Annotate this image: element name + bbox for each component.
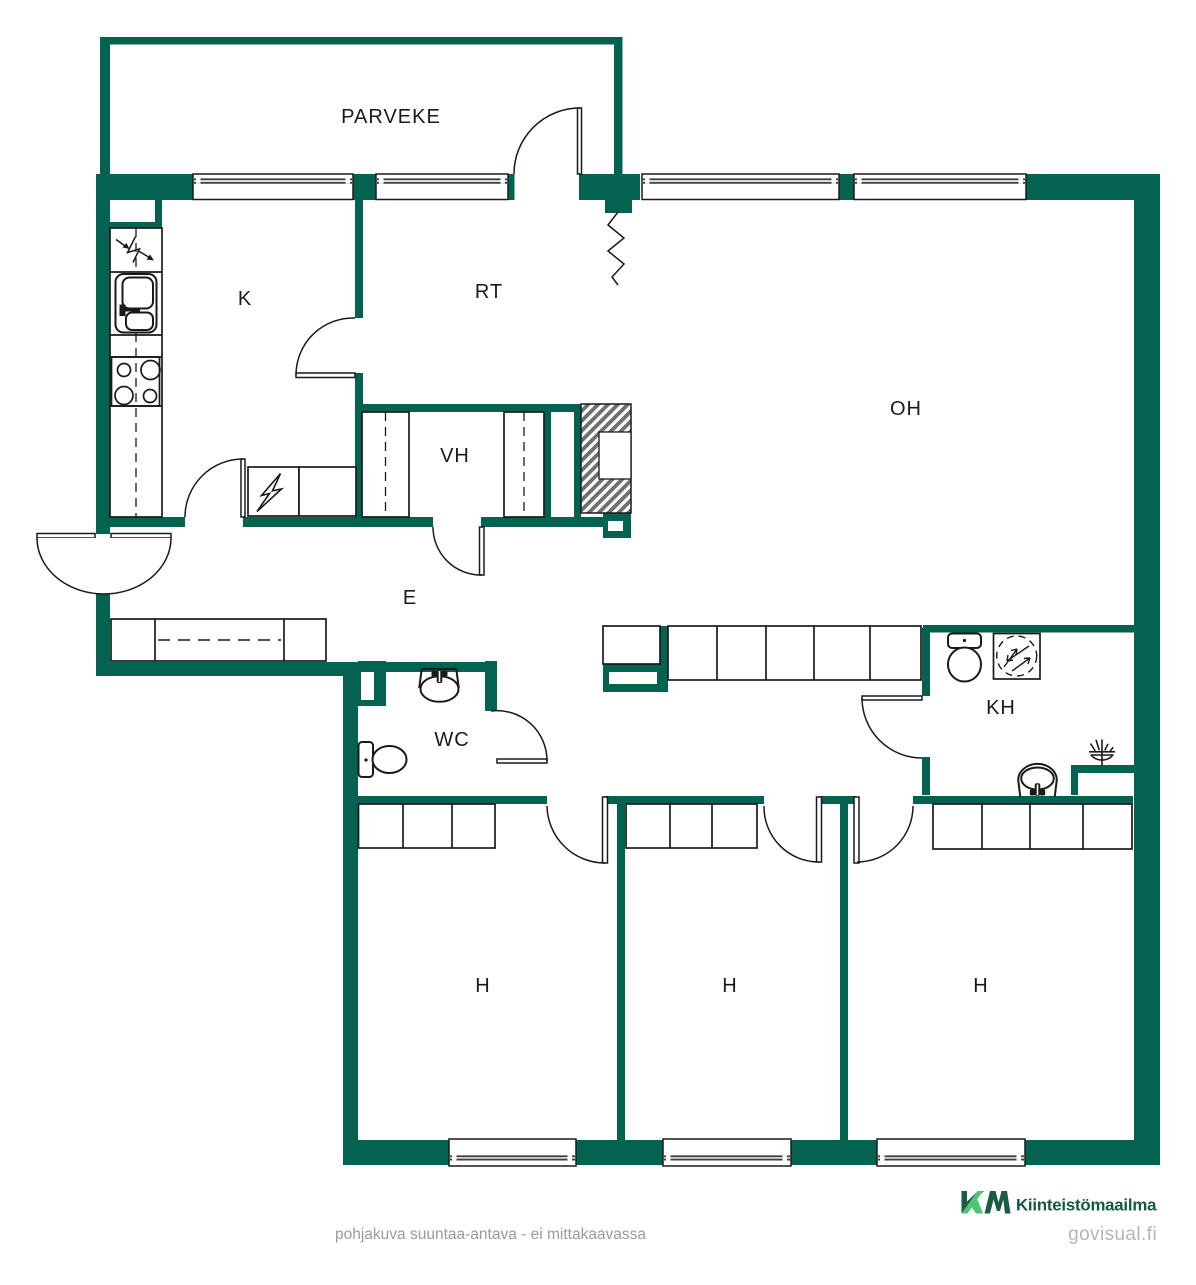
svg-text:govisual.fi: govisual.fi <box>1068 1224 1157 1245</box>
svg-text:KH: KH <box>986 697 1016 719</box>
svg-text:H: H <box>973 975 988 997</box>
svg-text:PARVEKE: PARVEKE <box>341 106 441 128</box>
svg-text:pohjakuva suuntaa-antava - ei: pohjakuva suuntaa-antava - ei mittakaava… <box>335 1226 646 1243</box>
svg-text:RT: RT <box>475 281 503 303</box>
svg-text:H: H <box>722 975 737 997</box>
svg-text:E: E <box>403 587 417 609</box>
svg-text:H: H <box>475 975 490 997</box>
svg-text:WC: WC <box>434 729 469 751</box>
svg-text:OH: OH <box>890 398 922 420</box>
svg-text:Kiinteistömaailma: Kiinteistömaailma <box>1016 1196 1157 1215</box>
svg-text:K: K <box>238 288 252 310</box>
svg-text:VH: VH <box>440 445 470 467</box>
